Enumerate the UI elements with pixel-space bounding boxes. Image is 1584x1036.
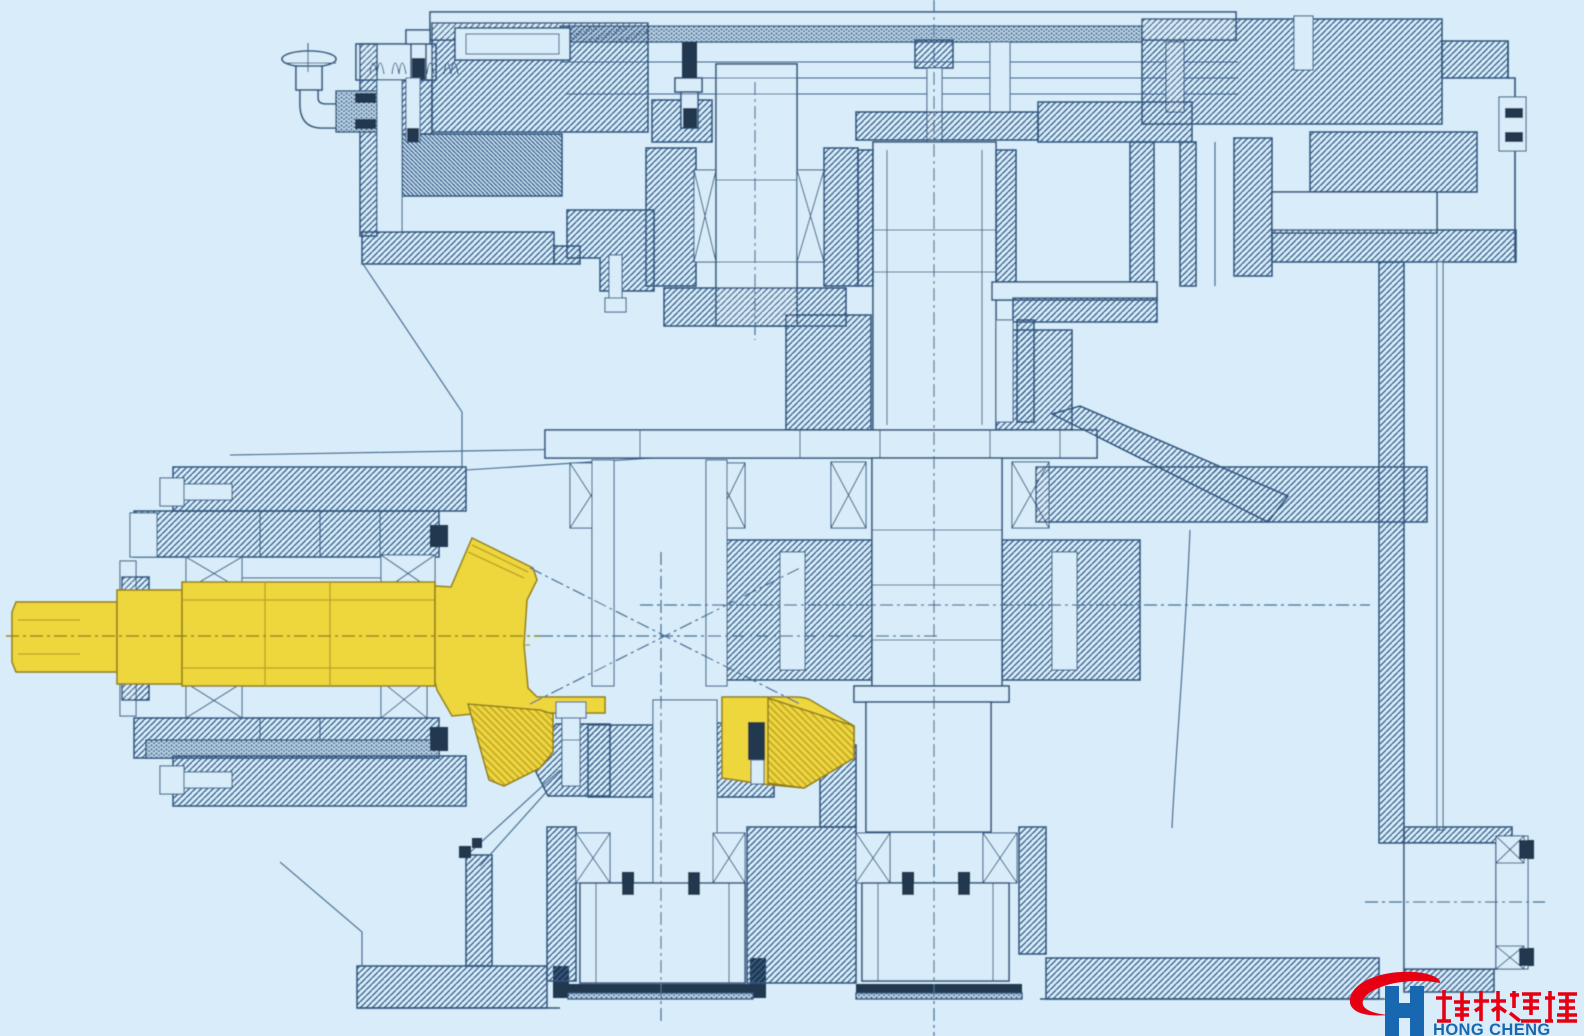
svg-text:HONG CHENG: HONG CHENG [1433,1021,1551,1036]
